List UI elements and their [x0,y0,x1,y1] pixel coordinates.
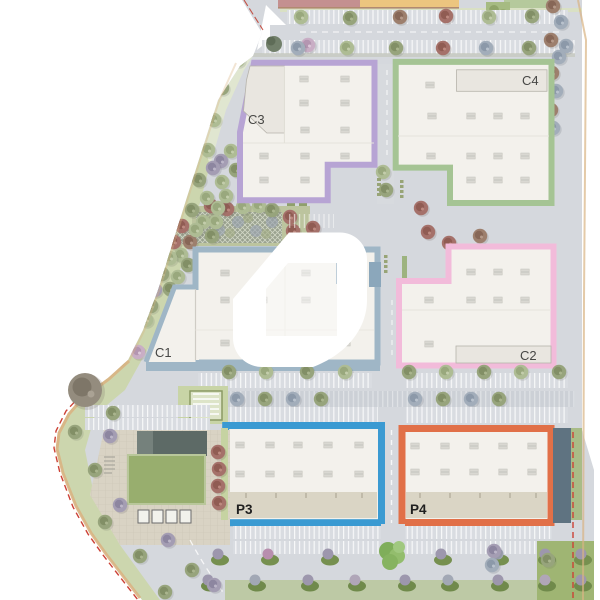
svg-text:C3: C3 [248,112,265,127]
svg-text:C1: C1 [155,345,172,360]
svg-text:P4: P4 [410,502,427,517]
svg-text:C4: C4 [522,73,539,88]
svg-text:C2: C2 [520,348,537,363]
svg-text:P3: P3 [236,502,253,517]
